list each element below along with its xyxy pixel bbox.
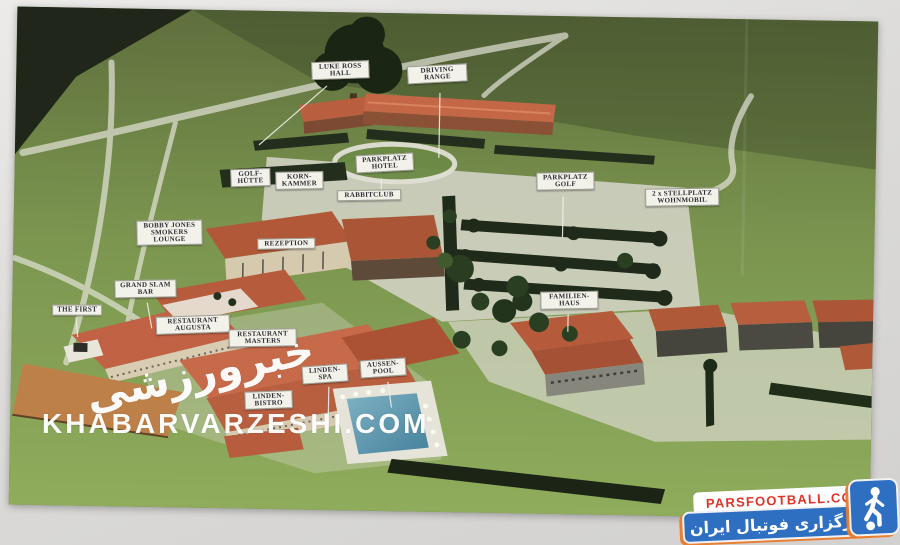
map-label-aussen-pool: AUSSEN-POOL [360, 357, 407, 378]
map-label-line: THE FIRST [54, 307, 100, 314]
map-label-line: RANGE [409, 72, 465, 82]
map-label-parkplatz-golf: PARKPLATZGOLF [536, 172, 594, 191]
map-label-line: WOHNMOBIL [647, 197, 717, 205]
map-label-line: BAR [117, 288, 175, 296]
map-label-rabbitclub: RABBITCLUB [337, 189, 401, 201]
map-label-bobby-jones-smokers-lounge: BOBBY JONESSMOKERSLOUNGE [136, 220, 202, 246]
map-label-driving-range: DRIVINGRANGE [407, 63, 468, 84]
map-label-korn-kammer: KORN-KAMMER [275, 171, 323, 190]
map-label-parkplatz-hotel: PARKPLATZHOTEL [355, 152, 414, 173]
map-label-familien-haus: FAMILIEN-HAUS [540, 291, 598, 310]
parsfootball-logo: PARSFOOTBALL.COM خبرگزاری فوتبال ایران [651, 477, 900, 545]
map-label-line: LOUNGE [139, 236, 201, 244]
map-label-restaurant-augusta: RESTAURANTAUGUSTA [156, 314, 231, 335]
map-label-rezeption: REZEPTION [257, 238, 315, 250]
map-label-linden-bistro: LINDEN-BISTRO [244, 390, 293, 410]
map-label-line: KAMMER [277, 180, 321, 188]
map-label-line: REZEPTION [259, 240, 313, 248]
resort-model-photo: LUKE ROSSHALLDRIVINGRANGEPARKPLATZHOTELG… [9, 7, 879, 520]
map-label-line: HAUS [542, 300, 596, 308]
map-label-golf-huette: GOLF-HÜTTE [230, 168, 271, 187]
footballer-icon [848, 478, 900, 537]
map-label-luke-ross-hall: LUKE ROSSHALL [311, 60, 370, 80]
khabarvarzeshi-url: KHABARVARZESHI.COM [42, 408, 429, 440]
map-label-line: HÜTTE [232, 177, 268, 185]
map-label-the-first: THE FIRST [52, 305, 102, 316]
map-label-grand-slam-bar: GRAND SLAMBAR [114, 279, 176, 298]
map-label-line: GOLF [538, 181, 592, 189]
map-label-layer: LUKE ROSSHALLDRIVINGRANGEPARKPLATZHOTELG… [9, 7, 879, 520]
map-label-stellplatz-wohnmobil: 2 x STELLPLATZWOHNMOBIL [645, 188, 719, 207]
map-label-line: RABBITCLUB [339, 191, 399, 199]
photo-frame: LUKE ROSSHALLDRIVINGRANGEPARKPLATZHOTELG… [0, 0, 900, 545]
